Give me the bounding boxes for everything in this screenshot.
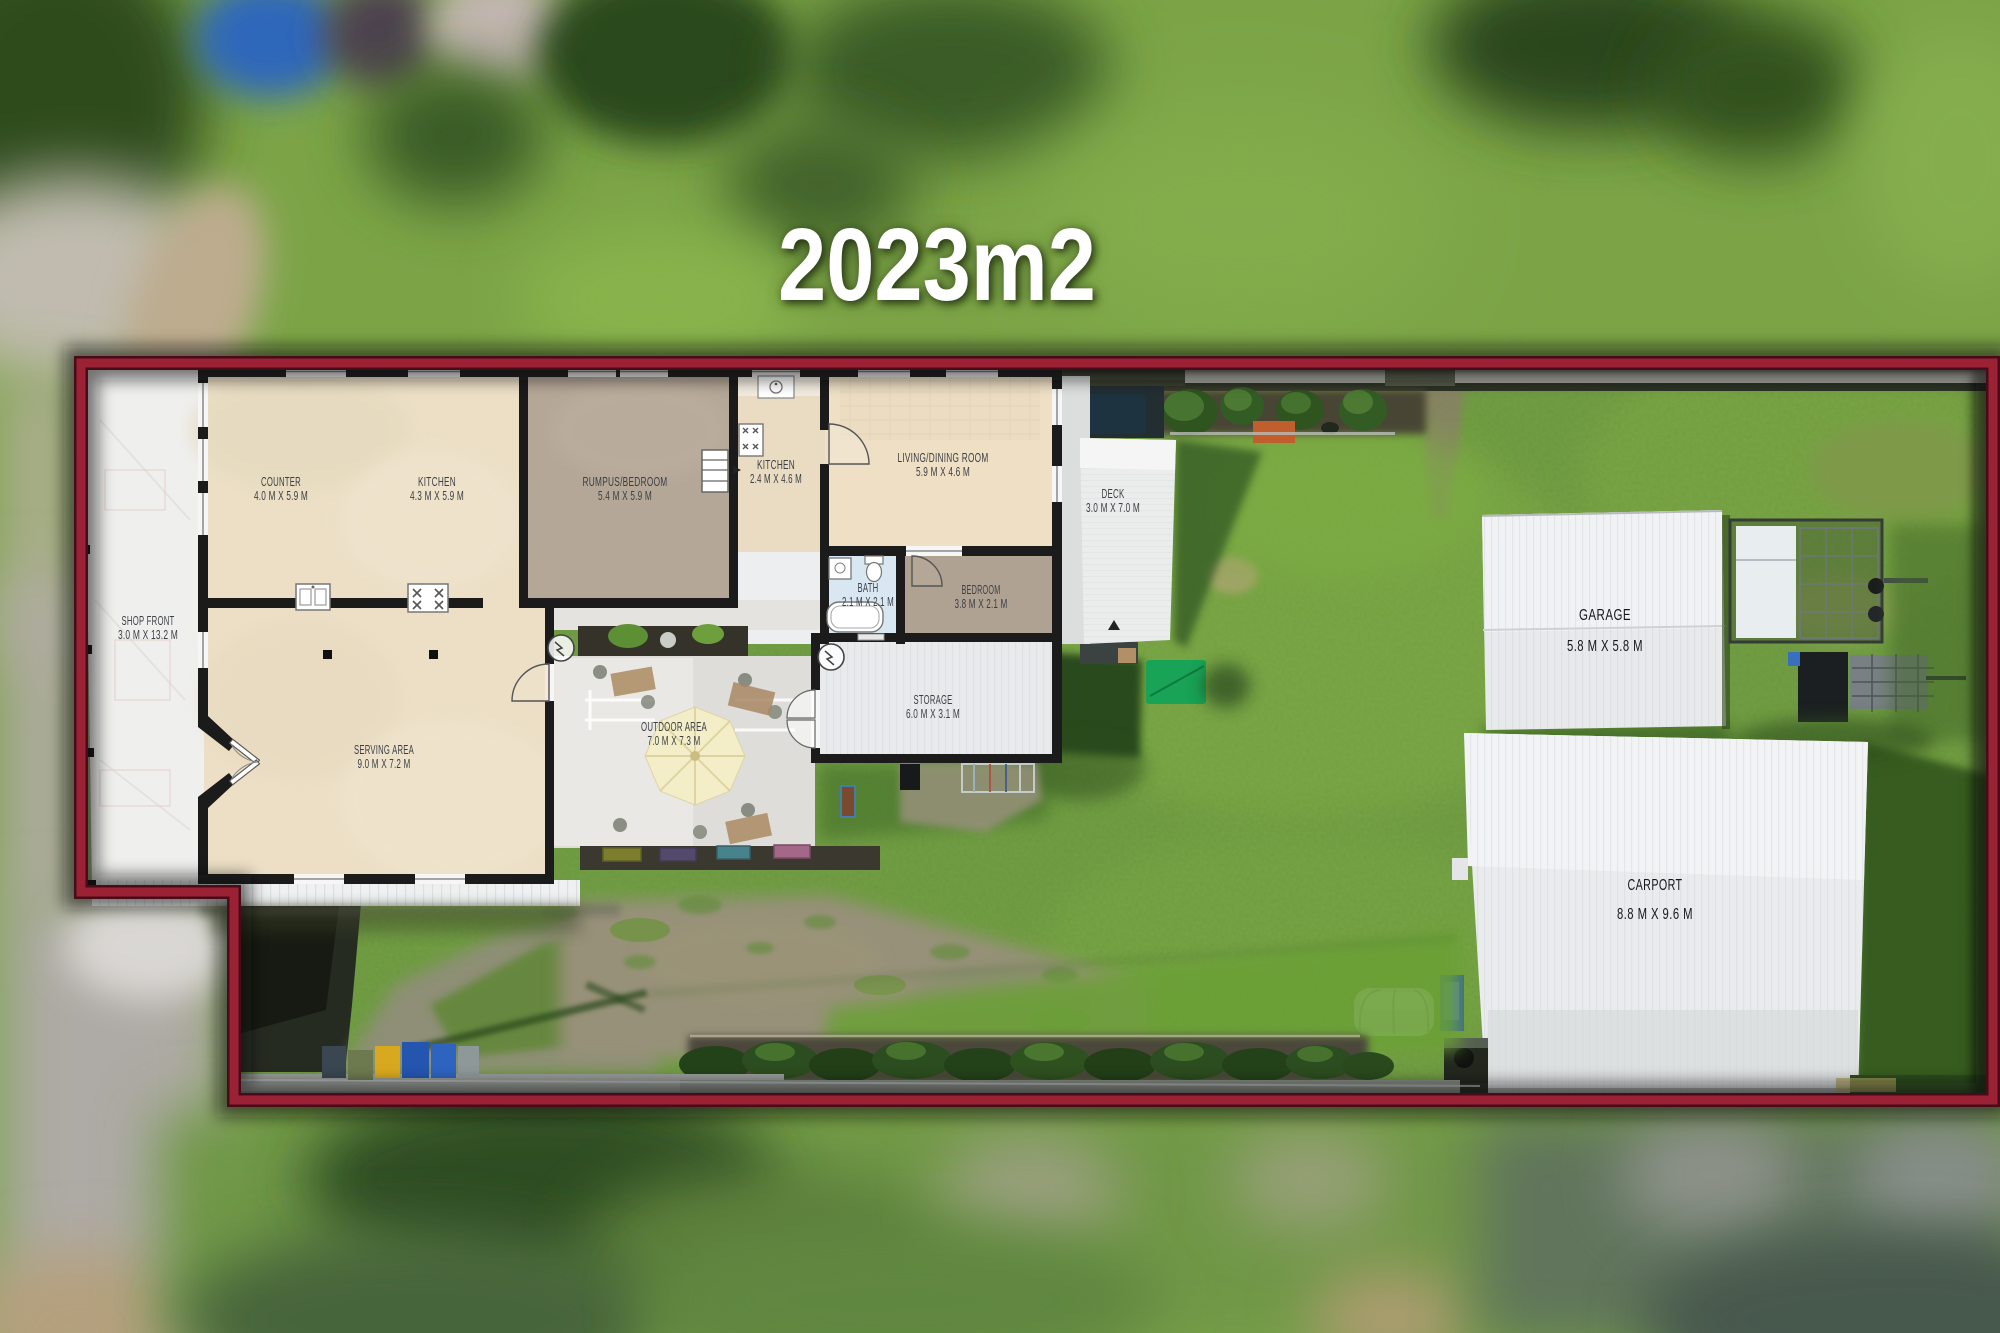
svg-text:2.1 M X 2.1 M: 2.1 M X 2.1 M [842,595,894,609]
svg-text:8.8 M X 9.6 M: 8.8 M X 9.6 M [1617,906,1693,923]
svg-text:5.4 M X 5.9 M: 5.4 M X 5.9 M [598,489,652,503]
svg-text:9.0 M X 7.2 M: 9.0 M X 7.2 M [358,757,411,771]
svg-text:BEDROOM: BEDROOM [962,583,1001,597]
svg-text:SERVING AREA: SERVING AREA [354,743,414,757]
svg-text:5.9 M X 4.6 M: 5.9 M X 4.6 M [916,465,970,479]
svg-text:2023m2: 2023m2 [778,207,1096,322]
svg-text:6.0 M X 3.1 M: 6.0 M X 3.1 M [906,707,960,721]
svg-text:RUMPUS/BEDROOM: RUMPUS/BEDROOM [583,475,668,489]
svg-text:DECK: DECK [1102,487,1125,501]
svg-text:2.4 M X 4.6 M: 2.4 M X 4.6 M [750,472,802,486]
svg-text:OUTDOOR AREA: OUTDOOR AREA [641,720,707,734]
svg-text:BATH: BATH [858,581,879,595]
svg-text:KITCHEN: KITCHEN [757,458,795,472]
svg-text:3.8 M X 2.1 M: 3.8 M X 2.1 M [955,597,1008,611]
svg-text:7.0 M X 7.3 M: 7.0 M X 7.3 M [648,734,701,748]
svg-text:COUNTER: COUNTER [261,475,301,489]
svg-text:5.8 M X 5.8 M: 5.8 M X 5.8 M [1567,638,1643,655]
svg-text:STORAGE: STORAGE [914,693,953,707]
svg-text:3.0 M X 13.2 M: 3.0 M X 13.2 M [118,628,178,642]
svg-text:4.0 M X 5.9 M: 4.0 M X 5.9 M [254,489,308,503]
svg-text:KITCHEN: KITCHEN [418,475,456,489]
svg-text:CARPORT: CARPORT [1628,877,1683,894]
svg-text:LIVING/DINING ROOM: LIVING/DINING ROOM [898,451,989,465]
svg-text:SHOP FRONT: SHOP FRONT [122,614,175,628]
svg-text:GARAGE: GARAGE [1579,607,1631,624]
svg-text:3.0 M X 7.0 M: 3.0 M X 7.0 M [1086,501,1140,515]
svg-text:4.3 M X 5.9 M: 4.3 M X 5.9 M [410,489,464,503]
